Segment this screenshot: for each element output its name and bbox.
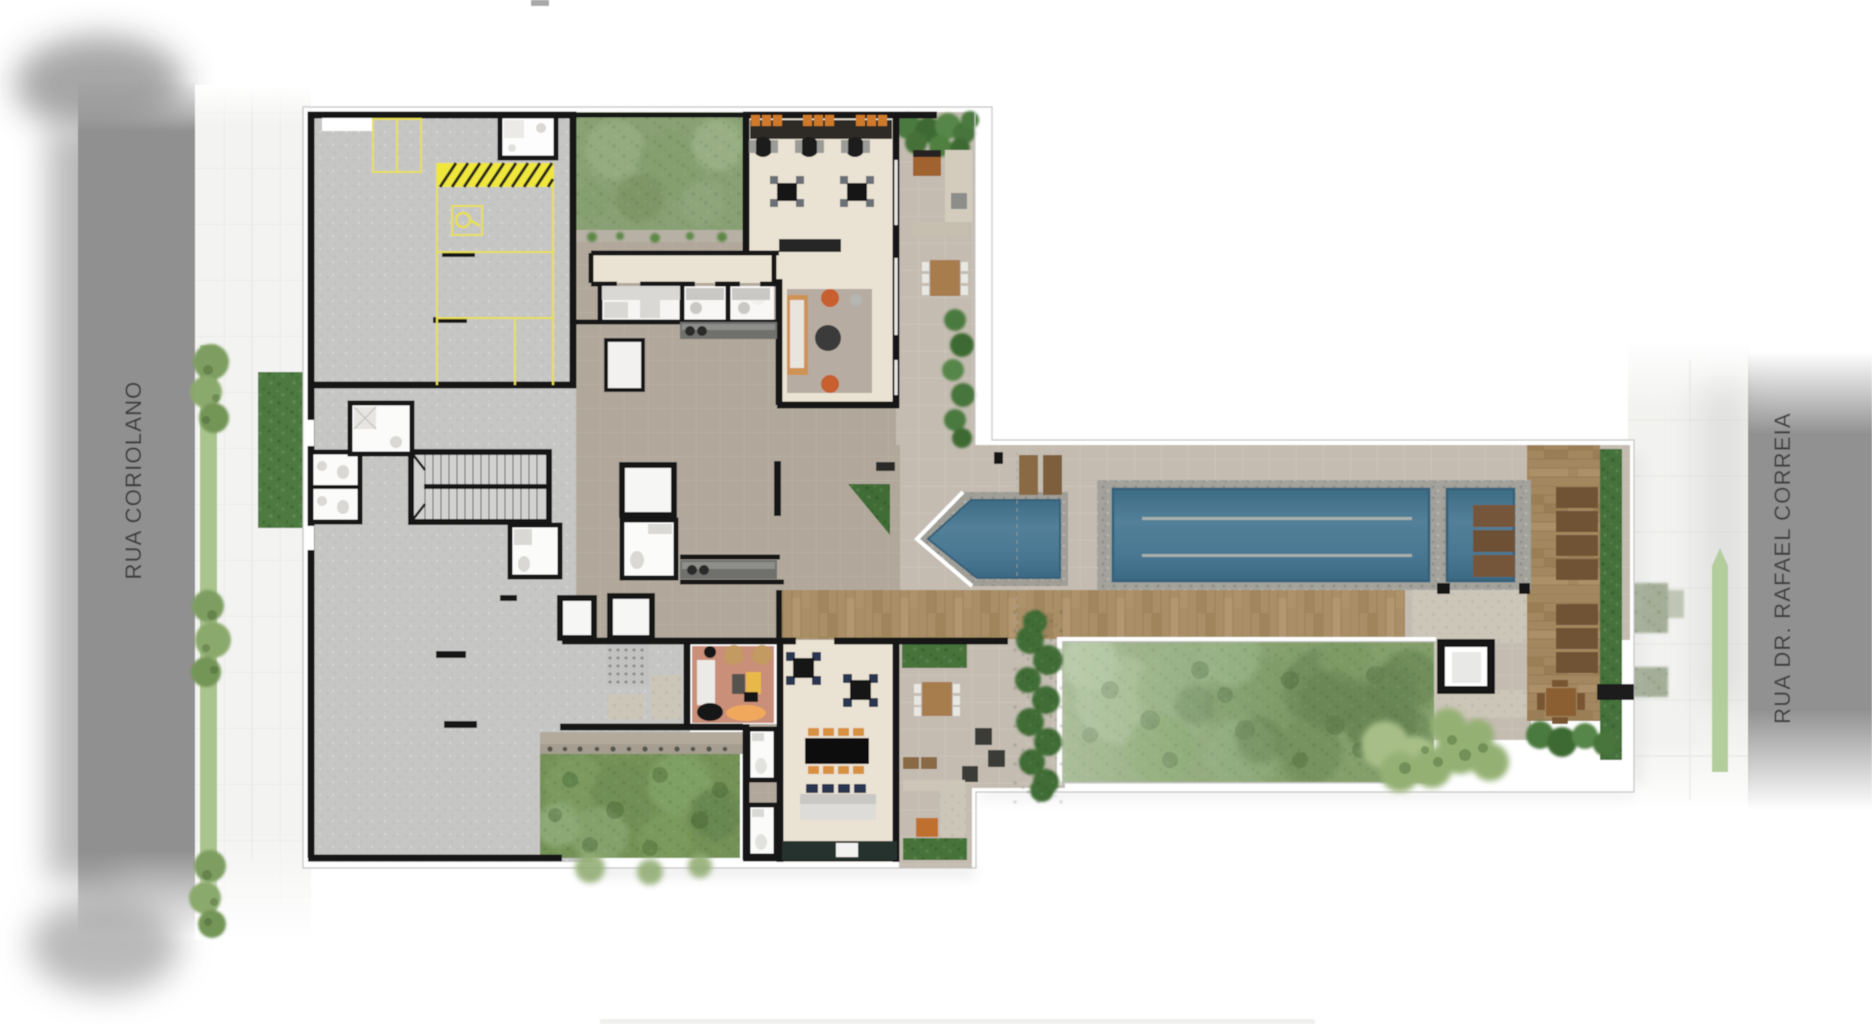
svg-text:RUA DR. RAFAEL CORREIA: RUA DR. RAFAEL CORREIA <box>1770 412 1795 724</box>
svg-text:RUA CORIOLANO: RUA CORIOLANO <box>121 381 146 580</box>
